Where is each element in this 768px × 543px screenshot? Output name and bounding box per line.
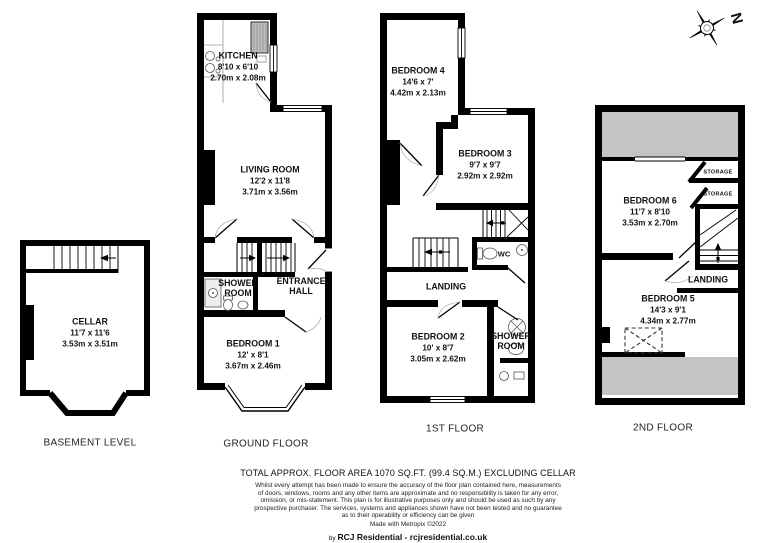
room-name: KITCHEN [210,51,266,62]
room-dim-imperial: 10' x 8'7 [410,343,466,354]
metropix-credit: Made with Metropix ©2022 [158,521,658,529]
bedroom-1-label: BEDROOM 1 12' x 8'1 3.67m x 2.46m [225,339,281,372]
agent-credit: by RCJ Residential - rcjresidential.co.u… [158,532,658,542]
room-name: BEDROOM 5 [640,294,696,305]
bedroom-3-label: BEDROOM 3 9'7 x 9'7 2.92m x 2.92m [457,149,513,182]
room-dim-metric: 3.53m x 2.70m [622,218,678,229]
first-landing-label: LANDING [426,282,466,293]
ground-shower-room-label: SHOWER ROOM [210,278,266,298]
room-dim-metric: 3.05m x 2.62m [410,354,466,365]
disclaimer-line: omission, or mis-statement. This plan is… [158,497,658,505]
disclaimer-line: Whilst every attempt has been made to en… [158,482,658,490]
room-name: BEDROOM 4 [390,66,446,77]
first-lower-stairs-icon [413,238,458,267]
room-name: ENTRANCE HALL [270,276,332,296]
second-floor-plan [593,100,749,412]
room-dim-metric: 2.70m x 2.08m [210,73,266,84]
room-name: BEDROOM 6 [622,196,678,207]
ground-bay-window [225,385,305,411]
second-stairs-icon [700,210,738,263]
room-dim-metric: 4.42m x 2.13m [390,88,446,99]
bedroom-2-label: BEDROOM 2 10' x 8'7 3.05m x 2.62m [410,332,466,365]
disclaimer-line: prospective purchaser. The services, sys… [158,505,658,513]
room-name: BEDROOM 3 [457,149,513,160]
living-room-label: LIVING ROOM 12'2 x 11'8 3.71m x 3.56m [240,165,299,198]
room-dim-imperial: 14'3 x 9'1 [640,305,696,316]
room-name: CELLAR [62,317,118,328]
second-landing-label: LANDING [688,275,728,286]
kitchen-label: KITCHEN 8'10 x 6'10 2.70m x 2.08m [210,51,266,84]
first-shower-room-label: SHOWER ROOM [483,331,539,351]
disclaimer-line: as to their operability or efficiency ca… [158,512,658,520]
restricted-height-cross-icon [625,328,662,353]
footer: TOTAL APPROX. FLOOR AREA 1070 SQ.FT. (99… [158,468,658,542]
cellar-label: CELLAR 11'7 x 11'6 3.53m x 3.51m [62,317,118,350]
bedroom-5-label: BEDROOM 5 14'3 x 9'1 4.34m x 2.77m [640,294,696,327]
bedroom-4-label: BEDROOM 4 14'6 x 7' 4.42m x 2.13m [390,66,446,99]
room-dim-metric: 2.92m x 2.92m [457,171,513,182]
basement-stairs-icon [26,246,118,273]
agent-credit-name: RCJ Residential - rcjresidential.co.uk [337,532,487,542]
bedroom-6-label: BEDROOM 6 11'7 x 8'10 3.53m x 2.70m [622,196,678,229]
storage-b-label: STORAGE [703,190,732,201]
room-name: BEDROOM 2 [410,332,466,343]
room-dim-imperial: 12'2 x 11'8 [240,176,299,187]
room-name: SHOWER ROOM [210,278,266,298]
first-floor-title: 1ST FLOOR [426,424,484,435]
room-dim-imperial: 11'7 x 11'6 [62,328,118,339]
room-dim-metric: 4.34m x 2.77m [640,316,696,327]
second-floor-title: 2ND FLOOR [633,423,693,434]
disclaimer-line: of doors, windows, rooms and any other i… [158,490,658,498]
room-dim-imperial: 9'7 x 9'7 [457,160,513,171]
room-dim-imperial: 8'10 x 6'10 [210,62,266,73]
room-name: LIVING ROOM [240,165,299,176]
room-dim-metric: 3.67m x 2.46m [225,361,281,372]
entrance-hall-label: ENTRANCE HALL [270,276,332,296]
floor-plan-page: N CELLAR 11'7 x 11'6 3.53m x 3.51m KITCH… [0,0,768,543]
basement-floor-title: BASEMENT LEVEL [44,438,137,449]
total-area-title: TOTAL APPROX. FLOOR AREA 1070 SQ.FT. (99… [158,468,658,478]
room-dim-imperial: 11'7 x 8'10 [622,207,678,218]
room-dim-metric: 3.71m x 3.56m [240,187,299,198]
ground-stairs-icon [237,243,295,272]
ground-floor-title: GROUND FLOOR [223,439,308,450]
first-upper-stairs-icon [483,210,528,237]
room-dim-metric: 3.53m x 3.51m [62,339,118,350]
basement-bay-window [50,393,126,413]
room-dim-imperial: 14'6 x 7' [390,77,446,88]
storage-a-label: STORAGE [703,168,732,179]
room-name: BEDROOM 1 [225,339,281,350]
room-name: SHOWER ROOM [483,331,539,351]
room-dim-imperial: 12' x 8'1 [225,350,281,361]
wc-label: WC [498,249,511,260]
agent-credit-prefix: by [329,535,336,542]
